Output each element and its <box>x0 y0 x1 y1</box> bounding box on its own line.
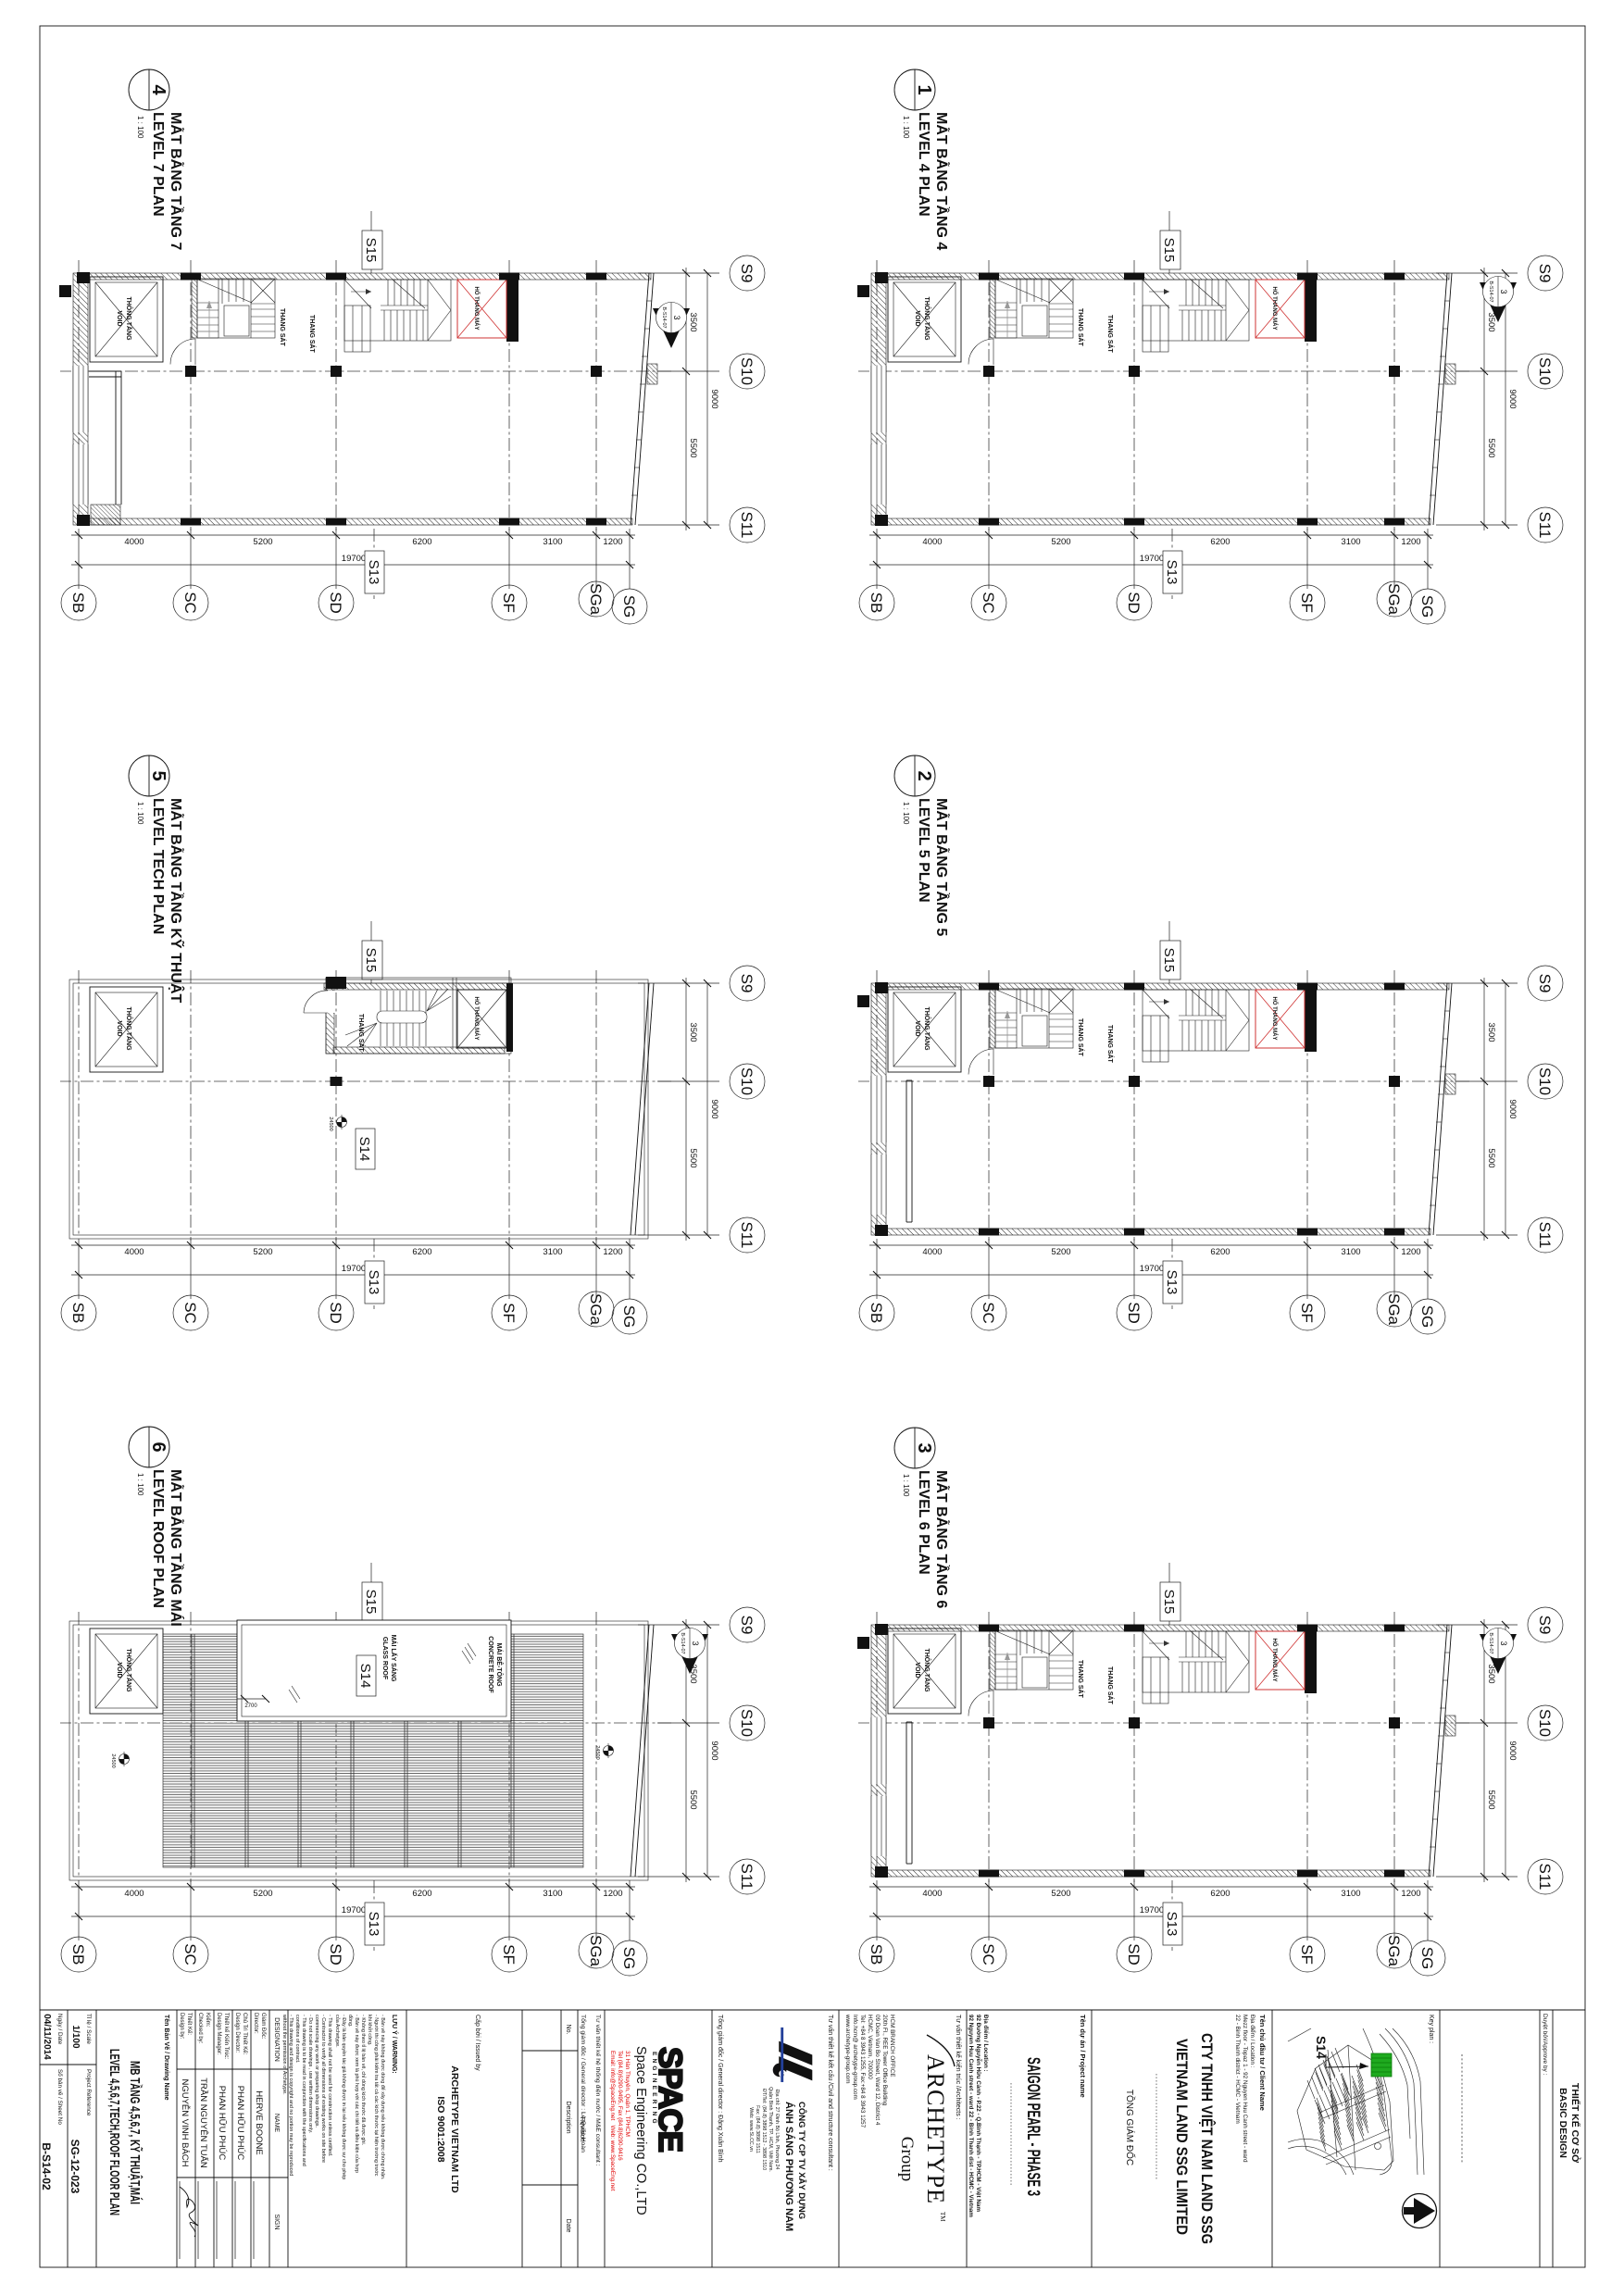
svg-text:1 : 100: 1 : 100 <box>902 116 910 139</box>
svg-text:Địa điểm / Location :: Địa điểm / Location : <box>1249 2015 1256 2068</box>
svg-text:1 : 100: 1 : 100 <box>902 802 910 825</box>
svg-text:Project Reference: Project Reference <box>85 2069 92 2116</box>
svg-text:1 : 100: 1 : 100 <box>136 802 144 825</box>
svg-text:without the permission of Arch: without the permission of Archetype. <box>281 2014 287 2095</box>
svg-text:1 : 100: 1 : 100 <box>136 1473 144 1496</box>
svg-text:Director:: Director: <box>253 2013 258 2034</box>
svg-text:www.archetype-group.com: www.archetype-group.com <box>844 2014 851 2084</box>
svg-text:LEVEL ROOF PLAN: LEVEL ROOF PLAN <box>150 1469 166 1608</box>
svg-text:- This drawing shall not be us: - This drawing shall not be used for con… <box>327 2015 332 2156</box>
svg-text:CTY TNHH VIỆT NAM LAND SSG: CTY TNHH VIỆT NAM LAND SSG <box>1198 2033 1216 2244</box>
svg-text:VIETNAM LAND SSG LIMITED: VIETNAM LAND SSG LIMITED <box>1173 2039 1190 2235</box>
svg-text:LEVEL TECH PLAN: LEVEL TECH PLAN <box>150 798 166 934</box>
svg-text:PHAN HỮU PHÚC: PHAN HỮU PHÚC <box>217 2086 227 2161</box>
svg-text:commencing any work or prepari: commencing any work or preparing shop dr… <box>314 2015 319 2128</box>
svg-text:- Contractor to verify all dim: - Contractor to verify all dimensions of… <box>320 2015 326 2163</box>
svg-text:Thiết Kế:: Thiết Kế: <box>186 2013 192 2035</box>
svg-text:LEVEL 4,5,6,7,TECH,ROOF FLOOR: LEVEL 4,5,6,7,TECH,ROOF FLOOR PLAN <box>106 2049 122 2215</box>
svg-text:THIẾT KẾ CƠ SỞ: THIẾT KẾ CƠ SỞ <box>1569 2083 1581 2163</box>
svg-text:Design by:: Design by: <box>179 2013 184 2040</box>
svg-text:Giám Đốc:: Giám Đốc: <box>260 2013 266 2040</box>
svg-text:Duyệt bởi/Approve by :: Duyệt bởi/Approve by : <box>1542 2014 1549 2076</box>
svg-text:Email: info@SpaceEng.net Web: Email: info@SpaceEng.net Web: www.SpaceE… <box>609 2051 616 2191</box>
svg-text:Date: Date <box>565 2219 571 2233</box>
svg-text:2700: 2700 <box>244 1703 257 1709</box>
svg-text:đồng.: đồng. <box>347 2015 353 2028</box>
svg-text:- Không theo tỉ lệ bản vẽ, chỉ: - Không theo tỉ lệ bản vẽ, chỉ dùng kích… <box>360 2015 367 2145</box>
svg-text:- This drawing and design is c: - This drawing and design is copyright a… <box>288 2015 294 2176</box>
svg-text:HCMC, Vietnam, 700000: HCMC, Vietnam, 700000 <box>867 2015 873 2079</box>
svg-text:Mezz floor - Topaz 1 - 92 Nguy: Mezz floor - Topaz 1 - 92 Nguyen Huu Can… <box>1242 2015 1248 2163</box>
svg-text:31 Hàn Thuyên, Quận 1, TPHCM: 31 Hàn Thuyên, Quận 1, TPHCM <box>624 2051 631 2137</box>
svg-text:S14: S14 <box>1314 2036 1329 2059</box>
svg-text:3: 3 <box>914 1442 934 1453</box>
svg-text:4: 4 <box>148 84 169 95</box>
svg-text:TRẦN NGUYÊN TUẤN: TRẦN NGUYÊN TUẤN <box>198 2078 208 2168</box>
svg-text:NGUYỄN VINH BÁCH: NGUYỄN VINH BÁCH <box>180 2078 191 2166</box>
svg-text:SG-12-023: SG-12-023 <box>69 2140 81 2194</box>
svg-text:Chủ Trì Thiết Kế:: Chủ Trì Thiết Kế: <box>242 2013 248 2055</box>
svg-text:ENGINEERING: ENGINEERING <box>651 2052 657 2127</box>
svg-text:HERVE BOONE: HERVE BOONE <box>254 2090 264 2155</box>
svg-text:- Bản vẽ này được xem là phù h: - Bản vẽ này được xem là phù hợp với các… <box>354 2015 360 2173</box>
svg-text:Quận Bình Thạnh, TP. HCM, Việt: Quận Bình Thạnh, TP. HCM, Việt Nam. <box>768 2087 773 2172</box>
svg-text:- This drawing is to be read i: - This drawing is to be read in conjunct… <box>301 2015 306 2166</box>
svg-text:B-S14-02: B-S14-02 <box>40 2142 53 2190</box>
svg-text:Key plan :: Key plan : <box>1428 2015 1434 2043</box>
svg-text:Design Manager:: Design Manager: <box>216 2013 221 2055</box>
svg-text:Group: Group <box>897 2137 917 2182</box>
svg-text:PHAN HỮU PHÚC: PHAN HỮU PHÚC <box>235 2086 245 2161</box>
svg-text:khi khởi công.: khi khởi công. <box>367 2015 373 2046</box>
svg-text:- Người thi công phải kiểm tra: - Người thi công phải kiểm tra tất cả cá… <box>373 2015 380 2177</box>
svg-text:LEVEL 4 PLAN: LEVEL 4 PLAN <box>916 112 931 217</box>
svg-text:BASIC DESIGN: BASIC DESIGN <box>1557 2088 1568 2158</box>
svg-text:Thiết kế Kiến Trúc:: Thiết kế Kiến Trúc: <box>223 2013 229 2059</box>
svg-text:THANG SÁT: THANG SÁT <box>357 1014 366 1053</box>
svg-text:22 - Binh Thanh district - HCM: 22 - Binh Thanh district - HCMC - Vietna… <box>1234 2015 1241 2124</box>
svg-text:MẰT BẰNG TẦNG 5: MẰT BẰNG TẦNG 5 <box>933 798 951 936</box>
svg-text:SAIGON PEARL - PHASE 3: SAIGON PEARL - PHASE 3 <box>1023 2057 1043 2196</box>
svg-text:92 Nguyen Huu Canh street - wa: 92 Nguyen Huu Canh street - ward 22 - Bi… <box>968 2015 974 2217</box>
svg-text:S14: S14 <box>357 1664 373 1689</box>
svg-text:Địa chỉ: 27 Đinh Bộ Lĩnh, Phườ: Địa chỉ: 27 Đinh Bộ Lĩnh, Phường 24 <box>774 2090 781 2170</box>
svg-text:Description: Description <box>565 2101 571 2133</box>
svg-text:ISO 9001:2008: ISO 9001:2008 <box>435 2096 446 2162</box>
svg-text:HỐ THANG MÁY: HỐ THANG MÁY <box>473 997 480 1041</box>
svg-text:GLASS ROOF: GLASS ROOF <box>381 1637 388 1680</box>
svg-text:1/100: 1/100 <box>70 2025 81 2048</box>
svg-text:1 : 100: 1 : 100 <box>902 1474 910 1497</box>
svg-text:Info.hcm@ archetype-group.com: Info.hcm@ archetype-group.com <box>852 2015 858 2100</box>
svg-text:Tỉ lệ / Scale: Tỉ lệ / Scale <box>85 2014 93 2044</box>
svg-text:HCM BRANCH OFFICE: HCM BRANCH OFFICE <box>889 2015 895 2078</box>
svg-text:Tên Bản Vẽ / Drawing Name: Tên Bản Vẽ / Drawing Name <box>163 2015 169 2101</box>
svg-text:1 : 100: 1 : 100 <box>136 116 144 139</box>
svg-text:2: 2 <box>914 770 934 780</box>
svg-text:LEVEL 5 PLAN: LEVEL 5 PLAN <box>916 798 931 903</box>
svg-text:Kiểm:: Kiểm: <box>205 2013 211 2028</box>
svg-text:NAME: NAME <box>273 2114 280 2133</box>
svg-text:Tên dự án / Project name: Tên dự án / Project name <box>1079 2015 1087 2098</box>
svg-text:- Do not scale drawings , use: - Do not scale drawings , use written di… <box>307 2015 313 2133</box>
svg-text:MẰT BẰNG TẦNG 6: MẰT BẰNG TẦNG 6 <box>933 1470 951 1608</box>
svg-text:MẰT BẰNG TẦNG MÁI: MẰT BẰNG TẦNG MÁI <box>168 1469 185 1627</box>
svg-text:TM: TM <box>939 2212 946 2222</box>
svg-text:Tên chủ đầu tư / Client Name: Tên chủ đầu tư / Client Name <box>1258 2015 1267 2111</box>
svg-text:Checked by:: Checked by: <box>197 2013 203 2044</box>
svg-text:6: 6 <box>148 1441 169 1452</box>
svg-text:MẰT BẰNG TẦNG 4: MẰT BẰNG TẦNG 4 <box>933 112 951 250</box>
svg-text:Design Director:: Design Director: <box>234 2013 240 2053</box>
svg-text:5: 5 <box>148 770 169 780</box>
svg-text:CONCRETE ROOF: CONCRETE ROOF <box>487 1636 493 1693</box>
svg-text:conditions of contract.: conditions of contract. <box>294 2015 300 2063</box>
svg-text:SIGN: SIGN <box>273 2214 280 2229</box>
svg-text:Tel (84.8)6290-9495, Fax (84.8: Tel (84.8)6290-9495, Fax (84.8)6290-9416 <box>617 2051 623 2161</box>
svg-text:MB TẦNG 4,5,6,7, KỸ THUẬT,MÁI: MB TẦNG 4,5,6,7, KỸ THUẬT,MÁI <box>127 2061 144 2204</box>
svg-text:Tel: +84 8 3943 1255, Fax:+84: Tel: +84 8 3943 1255, Fax:+84 8 3943 125… <box>859 2015 866 2128</box>
svg-text:CÔNG TY CP TV XÂY DỰNG: CÔNG TY CP TV XÂY DỰNG <box>796 2102 807 2219</box>
svg-text:DESIGNATION: DESIGNATION <box>273 2017 280 2062</box>
svg-text:ARCHETYPE VIETNAM LTD: ARCHETYPE VIETNAM LTD <box>449 2065 460 2193</box>
svg-text:No.: No. <box>565 2025 571 2035</box>
svg-text:MÁI BÊ-TÔNG: MÁI BÊ-TÔNG <box>495 1642 504 1687</box>
svg-text:LEVEL 6 PLAN: LEVEL 6 PLAN <box>916 1470 931 1575</box>
svg-text:- Đây là bản quyền tác giả khô: - Đây là bản quyền tác giả không được in… <box>341 2015 346 2179</box>
svg-text:20th Fl., REE Tower Office Bui: 20th Fl., REE Tower Office Building <box>881 2015 888 2106</box>
svg-text:Space Engineering CO.,LTD: Space Engineering CO.,LTD <box>633 2046 648 2215</box>
svg-text:Revision: Revision <box>579 2117 585 2142</box>
svg-text:LEVEL 7 PLAN: LEVEL 7 PLAN <box>150 112 166 217</box>
svg-text:1: 1 <box>914 84 934 94</box>
svg-text:của Archetype.: của Archetype. <box>334 2015 341 2048</box>
svg-text:ĐT/Tel: (84.8) 3898 1512 - 389: ĐT/Tel: (84.8) 3898 1512 - 3898 1510 <box>761 2089 767 2170</box>
svg-text:ÁNH SÁNG PHƯƠNG NAM: ÁNH SÁNG PHƯƠNG NAM <box>783 2102 795 2231</box>
svg-text:Fax: (84.8) 3898 1511: Fax: (84.8) 3898 1511 <box>755 2105 760 2153</box>
svg-text:- Bản vẽ này không được dùng đ: - Bản vẽ này không được dùng để xây dựng… <box>380 2015 386 2180</box>
svg-text:Web: www.SLCC.vn: Web: www.SLCC.vn <box>748 2107 754 2152</box>
svg-text:Ngày / Date: Ngày / Date <box>56 2014 63 2045</box>
svg-text:S14: S14 <box>356 1137 372 1162</box>
svg-text:MẰT BẰNG TẦNG 7: MẰT BẰNG TẦNG 7 <box>168 112 185 250</box>
svg-text:04/11/2014: 04/11/2014 <box>42 2014 52 2060</box>
svg-text:ARCHETYPE: ARCHETYPE <box>922 2054 949 2204</box>
svg-text:Địa điểm / Location :: Địa điểm / Location : <box>982 2015 990 2072</box>
svg-text:09 Doan Van Bo Street, Ward 12: 09 Doan Van Bo Street, Ward 12, District… <box>874 2015 881 2126</box>
